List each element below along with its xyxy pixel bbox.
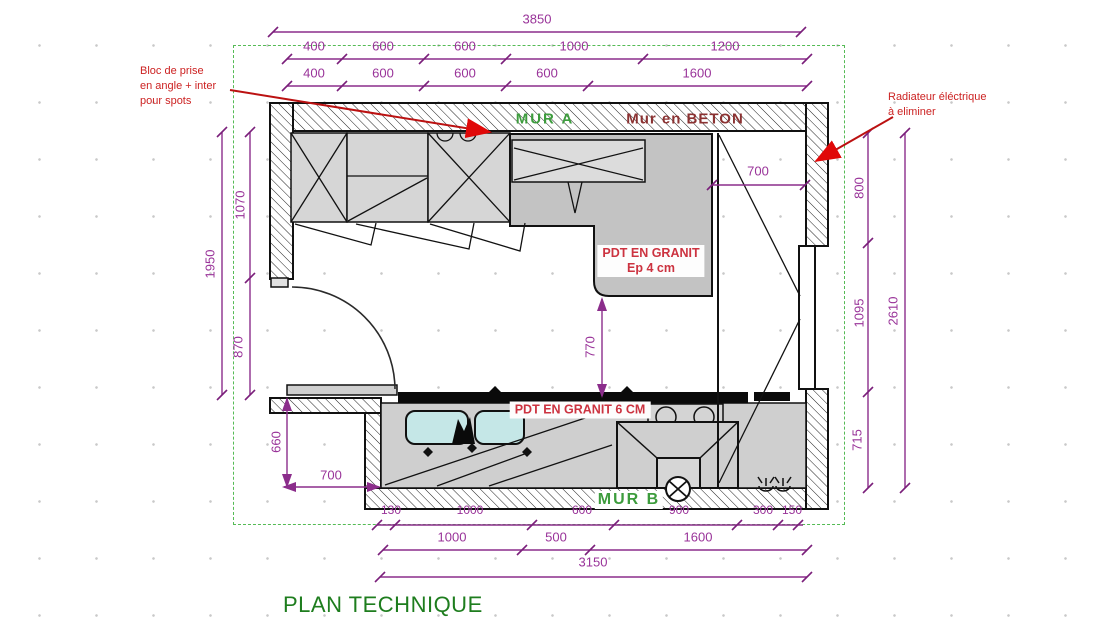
hob-back-panel xyxy=(648,404,723,422)
wall-right-top xyxy=(806,103,828,246)
annotation-bloc-prise-line1: Bloc de prise xyxy=(140,64,216,79)
dim-top-r2-4: 1200 xyxy=(711,39,740,54)
wall-bottom-left-v xyxy=(365,413,381,490)
annotation-bloc-prise: Bloc de prise en angle + inter pour spot… xyxy=(140,64,216,109)
plan-canvas: 3850 400 600 600 1000 1200 400 600 600 6… xyxy=(0,0,1120,623)
edge-mark xyxy=(489,386,501,392)
dim-top-r3-3: 600 xyxy=(536,66,558,81)
label-granit-4cm: PDT EN GRANIT Ep 4 cm xyxy=(597,245,704,277)
annotation-radiateur: Radiateur éléctrique à eliminer xyxy=(888,90,986,120)
label-mur-beton: Mur en BETON xyxy=(626,111,744,128)
dim-window-700: 700 xyxy=(747,164,769,179)
dim-top-total: 3850 xyxy=(523,12,552,27)
dim-top-r2-2: 600 xyxy=(454,39,476,54)
label-mur-b: MUR B xyxy=(595,491,663,509)
door-leaf xyxy=(287,385,397,395)
label-granit-4cm-line2: Ep 4 cm xyxy=(602,261,699,276)
dim-right-800: 800 xyxy=(852,177,867,199)
label-granit-4cm-line1: PDT EN GRANIT xyxy=(602,246,699,261)
dim-top-r2-3: 1000 xyxy=(560,39,589,54)
door-swing-arc xyxy=(292,287,395,389)
window-diagonal xyxy=(719,135,800,296)
radiator xyxy=(799,246,815,389)
dim-bot-r1-5: 150 xyxy=(782,503,802,517)
dim-left-1070: 1070 xyxy=(233,191,248,220)
annotation-bloc-prise-line2: en angle + inter xyxy=(140,79,216,94)
dim-top-r2-0: 400 xyxy=(303,39,325,54)
dim-bot-r1-1: 1000 xyxy=(457,503,484,517)
tall-cabinets xyxy=(291,133,510,222)
dim-bot-r2-1: 500 xyxy=(545,530,567,545)
dim-bot-r1-2: 600 xyxy=(572,503,592,517)
dim-bot-r1-4: 300 xyxy=(753,503,773,517)
dim-bot-r2-0: 1000 xyxy=(438,530,467,545)
dim-bot-r2-2: 1600 xyxy=(684,530,713,545)
dim-top-r2-1: 600 xyxy=(372,39,394,54)
dim-bottom-total: 3150 xyxy=(579,555,608,570)
page-title: PLAN TECHNIQUE xyxy=(283,592,483,618)
dim-left-870: 870 xyxy=(231,336,246,358)
dim-right-715: 715 xyxy=(850,429,865,451)
dim-bot-r1-0: 130 xyxy=(381,503,401,517)
counter-front-edge-right xyxy=(754,392,790,401)
dim-left-total: 1950 xyxy=(203,250,218,279)
dim-700-left: 700 xyxy=(320,468,342,483)
wall-left xyxy=(270,103,293,279)
label-mur-a: MUR A xyxy=(516,111,575,128)
dim-top-r3-2: 600 xyxy=(454,66,476,81)
dim-660: 660 xyxy=(269,431,284,453)
annotation-radiateur-line2: à eliminer xyxy=(888,105,986,120)
annotation-radiateur-line1: Radiateur éléctrique xyxy=(888,90,986,105)
dim-right-1095: 1095 xyxy=(852,299,867,328)
dim-top-r3-4: 1600 xyxy=(683,66,712,81)
dim-770: 770 xyxy=(583,336,598,358)
dim-top-r3-1: 600 xyxy=(372,66,394,81)
dim-top-r3-0: 400 xyxy=(303,66,325,81)
edge-mark xyxy=(621,386,633,392)
annotation-bloc-prise-line3: pour spots xyxy=(140,94,216,109)
dim-right-total: 2610 xyxy=(886,297,901,326)
door-frame-cap xyxy=(271,278,288,287)
label-granit-6cm: PDT EN GRANIT 6 CM xyxy=(510,402,651,419)
dim-bot-r1-3: 900 xyxy=(669,503,689,517)
wall-right-bottom xyxy=(806,389,828,509)
